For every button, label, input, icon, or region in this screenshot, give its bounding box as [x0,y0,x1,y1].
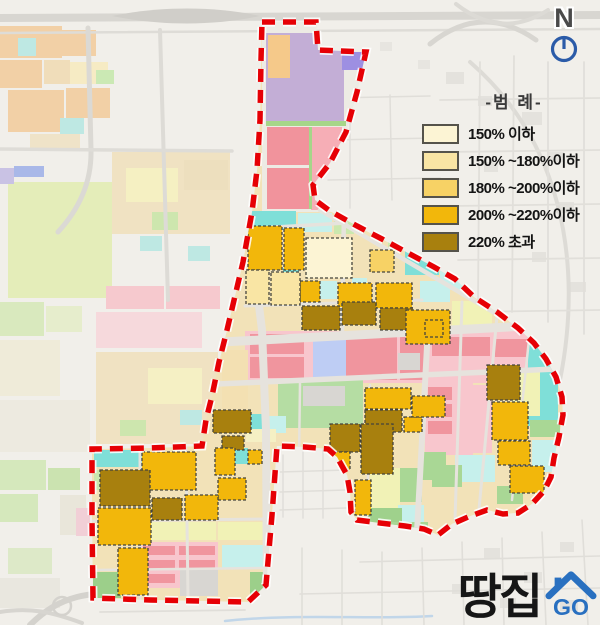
legend-swatch [422,205,459,225]
legend-item: 180% ~200%이하 [422,177,600,198]
legend-item: 150% ~180%이하 [422,150,600,171]
legend-swatch [422,124,459,144]
north-label: N [545,5,583,32]
legend-swatch [422,232,459,252]
brand-text-black: 땅집 [458,575,540,621]
brand-text-blue: GO [553,594,589,620]
legend-label: 150% ~180%이하 [468,150,579,171]
legend-title: -범 례- [438,88,590,113]
legend-label: 180% ~200%이하 [468,177,579,198]
legend-item: 200% ~220%이하 [422,204,600,225]
legend-swatch [422,151,459,171]
map-screenshot: N -범 례- 150% 이하 150% ~180%이하 180% ~200%이… [0,0,600,625]
house-go-icon: GO [545,565,597,621]
legend: -범 례- 150% 이하 150% ~180%이하 180% ~200%이하 … [422,88,600,258]
north-dial-icon [549,34,579,64]
legend-swatch [422,178,459,198]
brand-watermark: 땅집 GO [458,565,597,621]
north-indicator: N [545,5,583,64]
legend-item: 220% 초과 [422,231,600,252]
legend-label: 200% ~220%이하 [468,204,579,225]
legend-label: 150% 이하 [468,123,535,144]
legend-label: 220% 초과 [468,231,535,252]
legend-item: 150% 이하 [422,123,600,144]
